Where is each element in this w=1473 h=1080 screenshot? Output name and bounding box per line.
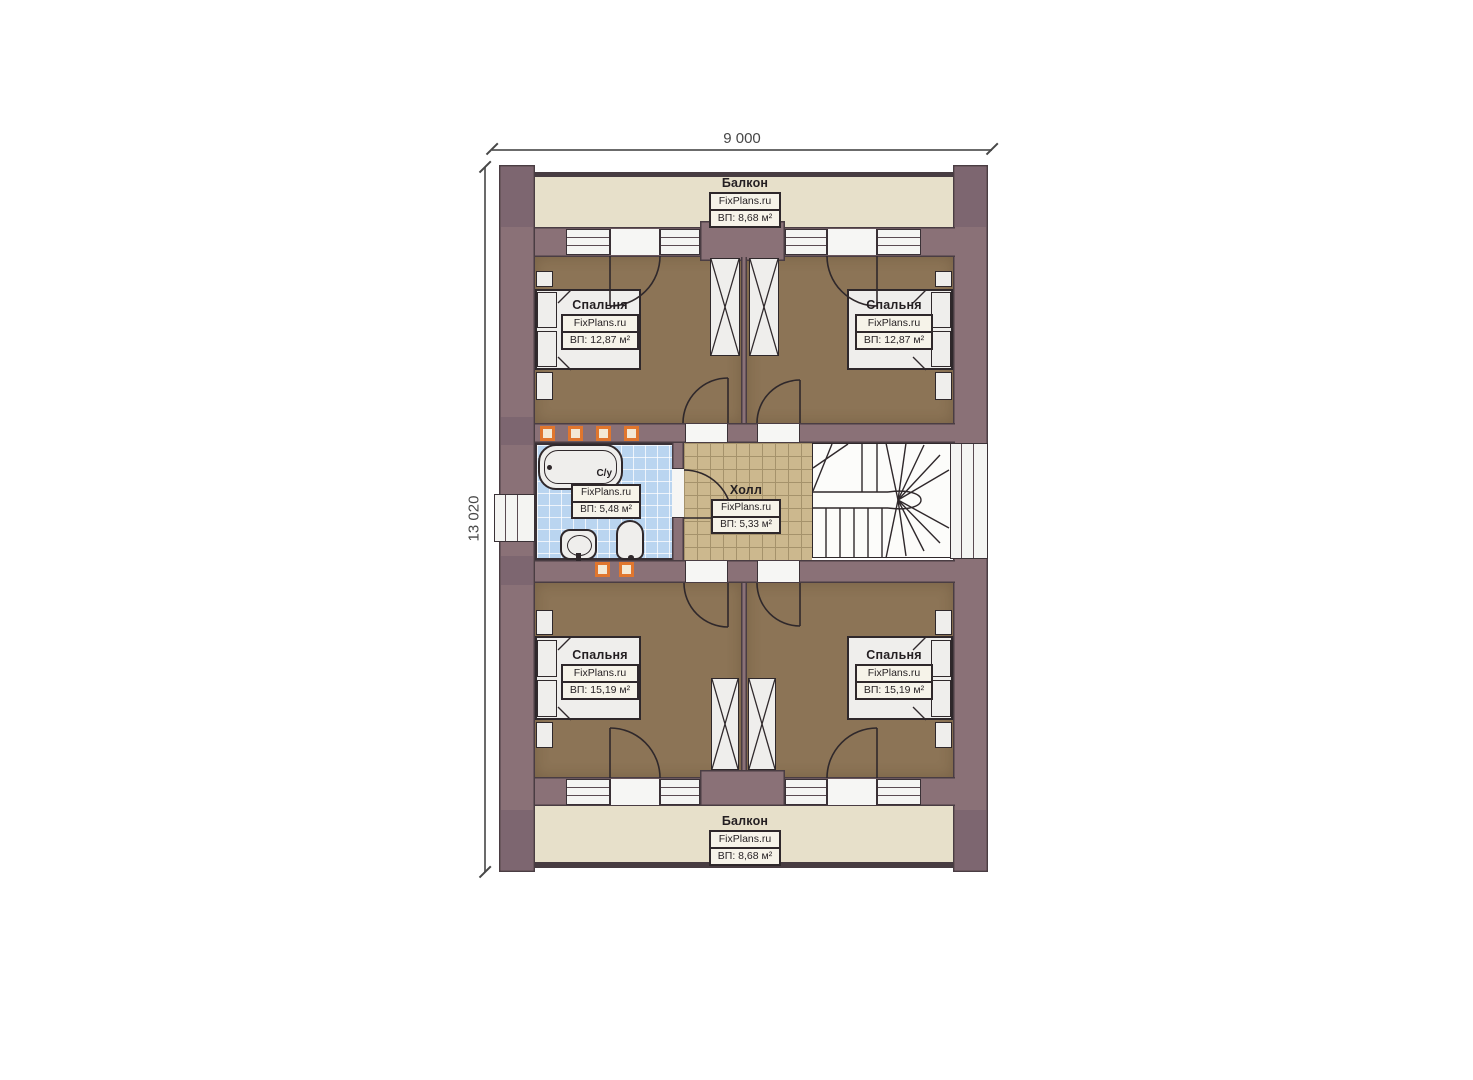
nightstand bbox=[536, 271, 553, 287]
door-opening-balcony-top-right bbox=[827, 229, 877, 255]
door-opening-hall-bedroom-tl bbox=[685, 424, 728, 442]
area-label: ВП: 15,19 м² bbox=[563, 683, 637, 698]
wardrobe bbox=[748, 678, 776, 770]
room-label-bathroom: FixPlans.ru ВП: 5,48 м² bbox=[560, 482, 652, 519]
door-opening-hall-bedroom-tr bbox=[757, 424, 800, 442]
bathtub-tap-icon bbox=[547, 465, 552, 470]
dimension-line-left bbox=[484, 167, 486, 872]
window-bottom-4 bbox=[877, 779, 921, 805]
area-label: ВП: 5,48 м² bbox=[573, 503, 639, 518]
dimension-label-height: 13 020 bbox=[466, 469, 483, 569]
room-label-bathroom-name: С/у bbox=[560, 468, 612, 479]
sink bbox=[560, 529, 597, 560]
floor-plan-canvas: Балкон FixPlans.ru ВП: 8,68 м² Спальня F… bbox=[0, 0, 1473, 1080]
wall-junction-left-mid-top bbox=[501, 417, 533, 445]
wardrobe bbox=[711, 678, 739, 770]
window-right-wall-stairs bbox=[950, 443, 988, 559]
window-top-2 bbox=[660, 229, 700, 255]
corner-pilaster-bottom-left bbox=[501, 810, 533, 870]
wall-center-bottom bbox=[741, 583, 747, 777]
orange-marker-icon bbox=[595, 562, 610, 577]
room-name: Балкон bbox=[695, 176, 795, 190]
door-opening-balcony-top-left bbox=[610, 229, 660, 255]
room-name: Спальня bbox=[843, 298, 945, 312]
corner-pilaster-top-right bbox=[955, 167, 986, 227]
info-box: FixPlans.ru ВП: 15,19 м² bbox=[561, 664, 639, 700]
info-box: FixPlans.ru ВП: 8,68 м² bbox=[709, 830, 781, 866]
brand-label: FixPlans.ru bbox=[573, 486, 639, 503]
staircase-area bbox=[812, 443, 952, 558]
door-opening-hall-bedroom-br bbox=[757, 561, 800, 582]
brand-label: FixPlans.ru bbox=[563, 316, 637, 333]
nightstand bbox=[935, 722, 952, 748]
wall-junction-left-mid-bottom bbox=[501, 556, 533, 585]
room-label-bedroom-bottom-left: Спальня FixPlans.ru ВП: 15,19 м² bbox=[549, 648, 651, 700]
toilet bbox=[616, 520, 644, 560]
orange-marker-icon bbox=[624, 426, 639, 441]
info-box: FixPlans.ru ВП: 12,87 м² bbox=[561, 314, 639, 350]
room-name: Холл bbox=[698, 483, 794, 497]
window-bottom-3 bbox=[785, 779, 827, 805]
nightstand bbox=[536, 722, 553, 748]
brand-label: FixPlans.ru bbox=[563, 666, 637, 683]
orange-marker-icon bbox=[568, 426, 583, 441]
brand-label: FixPlans.ru bbox=[857, 666, 931, 683]
wall-block-bottom-center bbox=[700, 770, 785, 806]
orange-marker-icon bbox=[619, 562, 634, 577]
nightstand bbox=[536, 610, 553, 635]
room-label-bedroom-bottom-right: Спальня FixPlans.ru ВП: 15,19 м² bbox=[843, 648, 945, 700]
door-opening-balcony-bottom-left bbox=[610, 779, 660, 805]
orange-marker-icon bbox=[540, 426, 555, 441]
wardrobe bbox=[710, 258, 740, 356]
wall-center-top bbox=[741, 257, 747, 423]
info-box: FixPlans.ru ВП: 15,19 м² bbox=[855, 664, 933, 700]
toilet-base-icon bbox=[628, 555, 634, 560]
window-top-4 bbox=[877, 229, 921, 255]
nightstand bbox=[935, 372, 952, 400]
room-name: Спальня bbox=[549, 298, 651, 312]
wardrobe bbox=[749, 258, 779, 356]
room-name: С/у bbox=[560, 468, 612, 479]
nightstand bbox=[935, 610, 952, 635]
area-label: ВП: 12,87 м² bbox=[563, 333, 637, 348]
area-label: ВП: 15,19 м² bbox=[857, 683, 931, 698]
window-top-1 bbox=[566, 229, 610, 255]
room-label-bedroom-top-right: Спальня FixPlans.ru ВП: 12,87 м² bbox=[843, 298, 945, 350]
room-label-balcony-top: Балкон FixPlans.ru ВП: 8,68 м² bbox=[695, 176, 795, 228]
brand-label: FixPlans.ru bbox=[713, 501, 779, 518]
sink-faucet-icon bbox=[576, 553, 581, 561]
room-label-bedroom-top-left: Спальня FixPlans.ru ВП: 12,87 м² bbox=[549, 298, 651, 350]
corner-pilaster-top-left bbox=[501, 167, 533, 227]
area-label: ВП: 5,33 м² bbox=[713, 518, 779, 533]
brand-label: FixPlans.ru bbox=[711, 194, 779, 211]
nightstand bbox=[935, 271, 952, 287]
room-label-hall: Холл FixPlans.ru ВП: 5,33 м² bbox=[698, 483, 794, 534]
info-box: FixPlans.ru ВП: 5,33 м² bbox=[711, 499, 781, 534]
window-bottom-1 bbox=[566, 779, 610, 805]
room-name: Спальня bbox=[549, 648, 651, 662]
brand-label: FixPlans.ru bbox=[711, 832, 779, 849]
door-opening-balcony-bottom-right bbox=[827, 779, 877, 805]
info-box: FixPlans.ru ВП: 12,87 м² bbox=[855, 314, 933, 350]
door-opening-hall-bedroom-bl bbox=[685, 561, 728, 582]
nightstand bbox=[536, 372, 553, 400]
orange-marker-icon bbox=[596, 426, 611, 441]
info-box: FixPlans.ru ВП: 8,68 м² bbox=[709, 192, 781, 228]
room-name: Балкон bbox=[695, 814, 795, 828]
area-label: ВП: 8,68 м² bbox=[711, 211, 779, 226]
room-label-balcony-bottom: Балкон FixPlans.ru ВП: 8,68 м² bbox=[695, 814, 795, 866]
dimension-line-top bbox=[492, 149, 992, 151]
door-opening-bathroom bbox=[672, 468, 684, 518]
room-name: Спальня bbox=[843, 648, 945, 662]
dimension-label-width: 9 000 bbox=[692, 130, 792, 147]
area-label: ВП: 12,87 м² bbox=[857, 333, 931, 348]
window-bottom-2 bbox=[660, 779, 700, 805]
area-label: ВП: 8,68 м² bbox=[711, 849, 779, 864]
window-left-wall bbox=[494, 494, 535, 542]
window-top-3 bbox=[785, 229, 827, 255]
info-box: FixPlans.ru ВП: 5,48 м² bbox=[571, 484, 641, 519]
brand-label: FixPlans.ru bbox=[857, 316, 931, 333]
corner-pilaster-bottom-right bbox=[955, 810, 986, 870]
